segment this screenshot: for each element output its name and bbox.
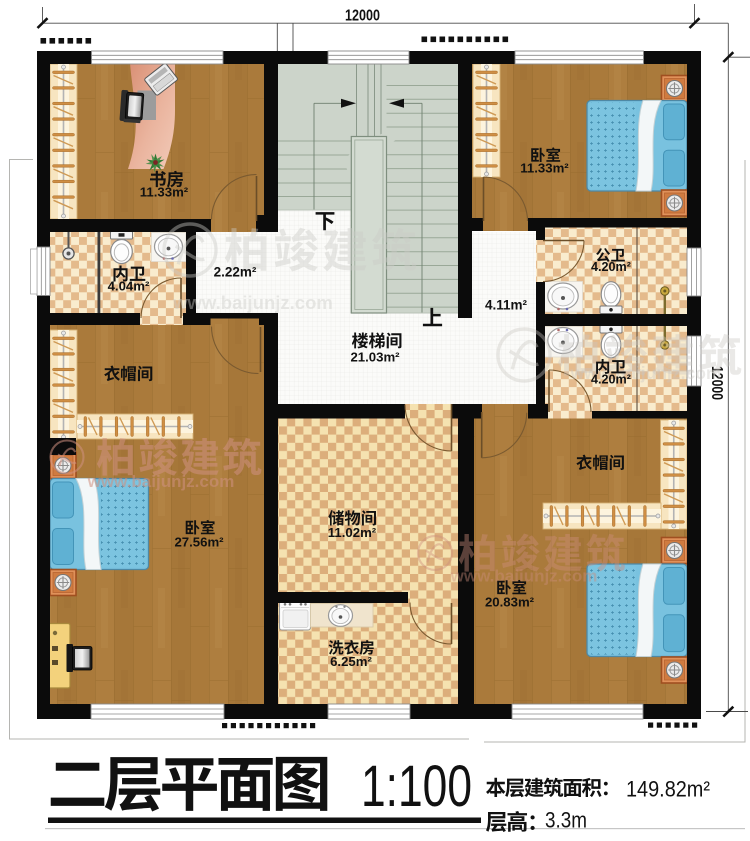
svg-text:www.baijunjz.com: www.baijunjz.com xyxy=(172,292,333,313)
svg-text:12000: 12000 xyxy=(345,8,380,25)
svg-text:2.22m²: 2.22m² xyxy=(214,265,257,280)
svg-text:3.3m: 3.3m xyxy=(545,808,587,833)
svg-text:20.83m²: 20.83m² xyxy=(485,595,535,610)
svg-text:4.04m²: 4.04m² xyxy=(108,279,150,294)
svg-text:www.baijunjz.com: www.baijunjz.com xyxy=(87,472,235,491)
svg-text:11.33m²: 11.33m² xyxy=(140,185,189,200)
svg-text:4.20m²: 4.20m² xyxy=(591,260,631,274)
svg-text:4.20m²: 4.20m² xyxy=(591,373,631,387)
svg-text:149.82m²: 149.82m² xyxy=(626,777,710,802)
svg-text:11.33m²: 11.33m² xyxy=(520,161,569,176)
svg-text:6.25m²: 6.25m² xyxy=(330,654,372,669)
svg-text:4.11m²: 4.11m² xyxy=(485,298,528,313)
svg-text:27.56m²: 27.56m² xyxy=(174,535,224,550)
svg-text:1:100: 1:100 xyxy=(361,754,472,819)
svg-text:21.03m²: 21.03m² xyxy=(350,350,400,365)
svg-text:11.02m²: 11.02m² xyxy=(328,525,377,540)
